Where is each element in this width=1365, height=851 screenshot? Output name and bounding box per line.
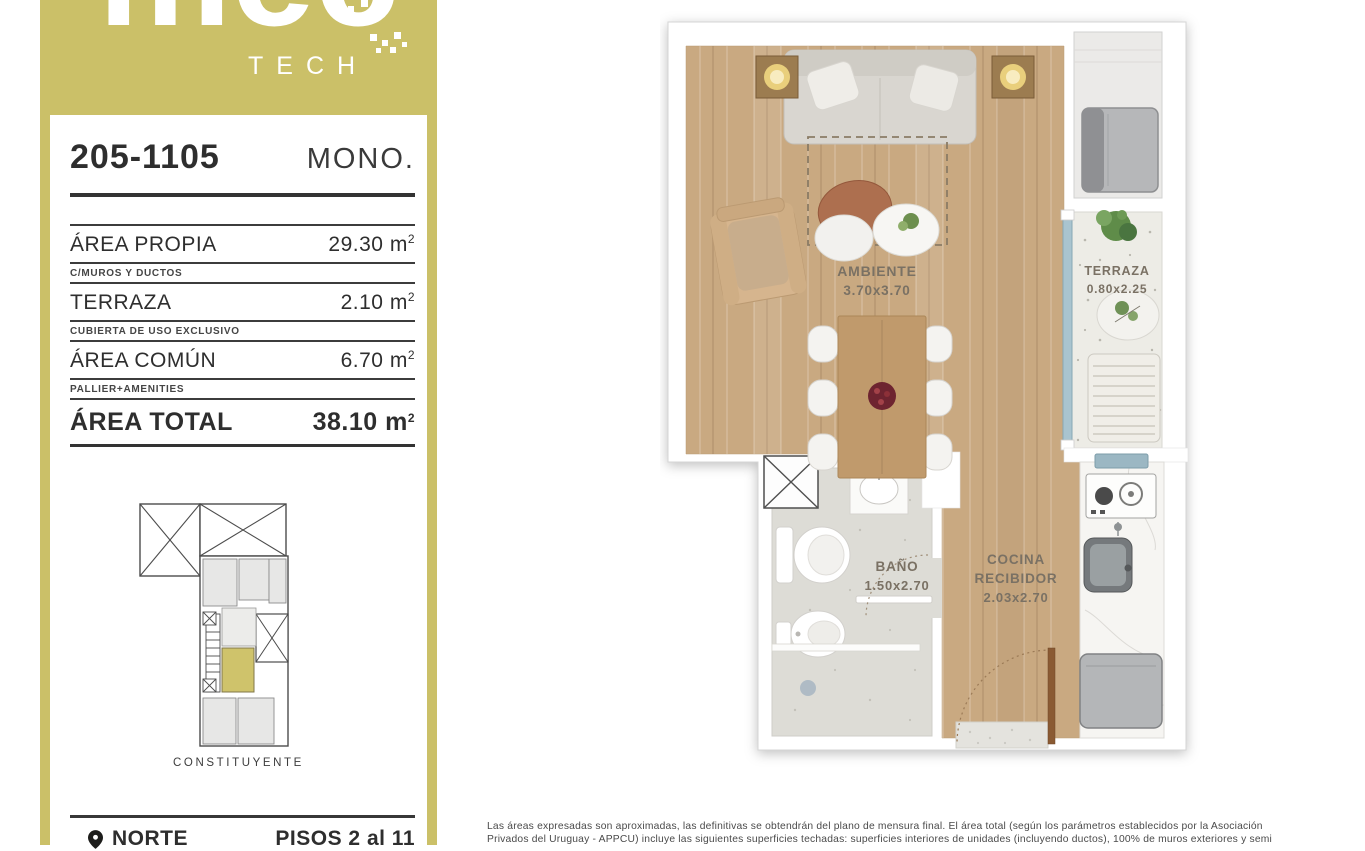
appliance bbox=[1082, 108, 1158, 192]
label-ambiente-dims: 3.70x3.70 bbox=[843, 283, 910, 298]
kitchen-sink bbox=[1084, 538, 1132, 592]
legal-disclaimer: Las áreas expresadas son aproximadas, la… bbox=[487, 821, 1365, 846]
area-label: ÁREA PROPIA bbox=[70, 233, 217, 257]
shower-drain bbox=[800, 680, 816, 696]
north-indicator: NORTE bbox=[70, 827, 188, 851]
footer-divider bbox=[70, 815, 415, 818]
closet-niche bbox=[1074, 32, 1162, 198]
disclaimer-line-2: Privados del Uruguay - APPCU) incluye la… bbox=[487, 834, 1365, 847]
area-row-terraza: TERRAZA 2.10 m2 bbox=[70, 284, 415, 322]
panel-footer: NORTE PISOS 2 al 11 bbox=[70, 827, 415, 851]
doormat bbox=[956, 722, 1048, 748]
label-cocina-dims: 2.03x2.70 bbox=[983, 590, 1048, 605]
area-label: TERRAZA bbox=[70, 291, 172, 315]
area-total-label: ÁREA TOTAL bbox=[70, 408, 233, 437]
area-label: ÁREA COMÚN bbox=[70, 349, 216, 373]
plan-sheet-page: { "brand": { "name": "mec", "sub": "TECH… bbox=[0, 0, 1365, 845]
spec-panel: mec TECH 205-1105 MONO. ÁREA PROPIA 29.3… bbox=[40, 0, 437, 845]
fridge bbox=[1080, 654, 1162, 728]
fruit-bowl bbox=[868, 382, 896, 410]
label-terraza-dims: 0.80x2.25 bbox=[1087, 282, 1148, 296]
label-cocina-2: RECIBIDOR bbox=[975, 571, 1058, 586]
highlighted-unit bbox=[222, 648, 254, 692]
label-bano: BAÑO bbox=[876, 559, 919, 574]
north-label: NORTE bbox=[112, 827, 188, 851]
street-label: CONSTITUYENTE bbox=[50, 757, 427, 769]
ceiling-spotlight-right bbox=[992, 56, 1034, 98]
area-value: 6.70 m2 bbox=[341, 348, 415, 373]
entry-door-leaf bbox=[1048, 648, 1055, 744]
north-pin-icon bbox=[88, 830, 103, 849]
area-note: CUBIERTA DE USO EXCLUSIVO bbox=[70, 322, 415, 342]
area-row-total: ÁREA TOTAL 38.10 m2 bbox=[70, 400, 415, 447]
area-note: C/MUROS Y DUCTOS bbox=[70, 264, 415, 284]
label-ambiente: AMBIENTE bbox=[837, 263, 917, 279]
label-terraza: TERRAZA bbox=[1084, 264, 1149, 278]
toilet bbox=[776, 527, 850, 583]
armchair bbox=[708, 195, 808, 306]
glass-wall bbox=[1061, 210, 1074, 450]
unit-code: 205-1105 bbox=[70, 138, 220, 177]
lounge-chair bbox=[1088, 354, 1160, 442]
dining-set bbox=[808, 316, 952, 478]
dish-rack bbox=[1095, 454, 1148, 468]
label-bano-dims: 1.50x2.70 bbox=[864, 578, 929, 593]
stove bbox=[1086, 474, 1156, 518]
area-table: ÁREA PROPIA 29.30 m2 C/MUROS Y DUCTOS TE… bbox=[70, 224, 415, 447]
unit-header: 205-1105 MONO. bbox=[70, 138, 415, 197]
label-cocina-1: COCINA bbox=[987, 552, 1045, 567]
area-row-comun: ÁREA COMÚN 6.70 m2 bbox=[70, 342, 415, 380]
area-note: PALLIER+AMENITIES bbox=[70, 380, 415, 400]
area-row-propia: ÁREA PROPIA 29.30 m2 bbox=[70, 226, 415, 264]
terraza-rug bbox=[1097, 290, 1159, 340]
disclaimer-line-1: Las áreas expresadas son aproximadas, la… bbox=[487, 821, 1365, 834]
sofa bbox=[784, 50, 976, 144]
area-value: 29.30 m2 bbox=[328, 232, 415, 257]
building-key-plan bbox=[138, 496, 298, 756]
room-terraza bbox=[1061, 210, 1162, 450]
brand-logo: mec TECH bbox=[40, 0, 437, 115]
area-value: 2.10 m2 bbox=[341, 290, 415, 315]
area-total-value: 38.10 m2 bbox=[313, 408, 415, 437]
unit-type-label: MONO. bbox=[307, 143, 415, 176]
pixel-pattern-decoration bbox=[40, 0, 437, 115]
shower-divider bbox=[772, 644, 920, 651]
kitchen-counter bbox=[1080, 454, 1164, 738]
ceiling-spotlight-left bbox=[756, 56, 798, 98]
floors-label: PISOS 2 al 11 bbox=[275, 827, 415, 851]
stair-core bbox=[203, 612, 220, 692]
towel-bar bbox=[856, 596, 932, 603]
floor-plan: AMBIENTE 3.70x3.70 TERRAZA 0.80x2.25 BAÑ… bbox=[660, 10, 1200, 800]
